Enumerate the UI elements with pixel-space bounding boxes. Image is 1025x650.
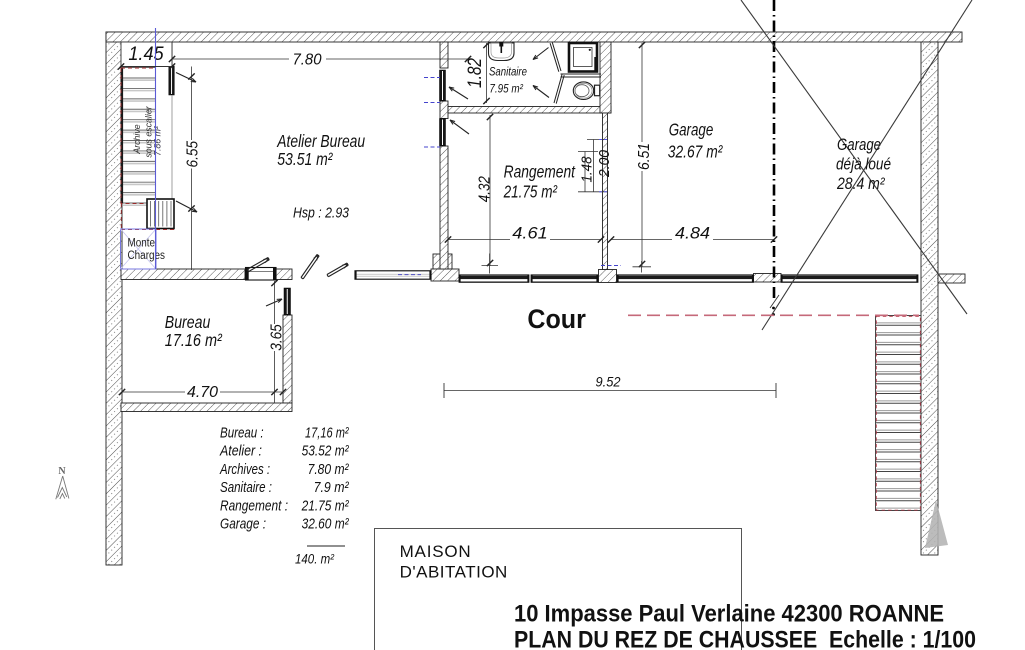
svg-text:PLAN DU REZ DE CHAUSSEE Echel: PLAN DU REZ DE CHAUSSEE Echelle : 1/100	[514, 627, 976, 650]
svg-text:1.45: 1.45	[128, 44, 164, 65]
svg-text:53.52 m²: 53.52 m²	[302, 443, 350, 460]
svg-text:déjà loué: déjà loué	[836, 156, 891, 174]
svg-text:Garage :: Garage :	[220, 516, 266, 533]
svg-text:4.32: 4.32	[476, 176, 493, 202]
svg-text:Archive: Archive	[132, 124, 142, 154]
svg-text:7.95 m²: 7.95 m²	[489, 81, 523, 95]
svg-text:Bureau: Bureau	[165, 312, 211, 332]
svg-text:Rangement :: Rangement :	[220, 497, 288, 514]
svg-text:7.9 m²: 7.9 m²	[314, 479, 350, 496]
svg-text:Bureau :: Bureau :	[220, 425, 264, 442]
svg-text:7.80: 7.80	[293, 51, 322, 68]
svg-text:Garage: Garage	[669, 120, 714, 140]
svg-text:Hsp : 2.93: Hsp : 2.93	[293, 206, 349, 222]
svg-text:1.48: 1.48	[579, 156, 596, 183]
svg-text:4.61: 4.61	[512, 224, 548, 243]
svg-text:Atelier Bureau: Atelier Bureau	[277, 131, 366, 151]
svg-text:2.00: 2.00	[596, 149, 613, 178]
svg-text:D'ABITATION: D'ABITATION	[400, 563, 508, 582]
svg-text:Charges: Charges	[128, 250, 166, 262]
svg-text:MAISON: MAISON	[400, 542, 472, 561]
svg-text:Sanitaire: Sanitaire	[489, 65, 527, 79]
svg-text:Atelier :: Atelier :	[219, 443, 262, 460]
svg-text:140. m²: 140. m²	[295, 551, 335, 567]
svg-text:53.51 m²: 53.51 m²	[277, 149, 333, 169]
svg-text:7.80 m²: 7.80 m²	[308, 461, 350, 478]
svg-text:Cour: Cour	[527, 304, 586, 334]
svg-text:21.75 m²: 21.75 m²	[503, 182, 558, 202]
svg-text:9.52: 9.52	[596, 374, 621, 390]
svg-text:28.4 m²: 28.4 m²	[836, 175, 885, 193]
svg-text:4.84: 4.84	[675, 224, 710, 243]
svg-text:6.51: 6.51	[636, 143, 653, 170]
svg-text:32.60 m²: 32.60 m²	[302, 516, 350, 533]
svg-text:Rangement: Rangement	[504, 162, 576, 182]
svg-text:17.16 m²: 17.16 m²	[165, 330, 223, 350]
svg-text:Monte: Monte	[128, 238, 156, 250]
svg-text:Garage: Garage	[837, 136, 881, 154]
svg-text:1.82: 1.82	[465, 58, 486, 88]
svg-text:32.67 m²: 32.67 m²	[668, 142, 723, 162]
svg-text:N: N	[58, 466, 66, 477]
svg-text:17,16 m²: 17,16 m²	[305, 425, 349, 442]
svg-text:Archives :: Archives :	[219, 461, 270, 478]
svg-text:6.55: 6.55	[185, 141, 202, 168]
svg-text:10 Impasse Paul Verlaine 42300: 10 Impasse Paul Verlaine 42300 ROANNE	[514, 601, 944, 628]
svg-text:Sanitaire :: Sanitaire :	[220, 479, 272, 496]
svg-text:7.86 m²: 7.86 m²	[153, 125, 163, 156]
svg-text:21.75 m²: 21.75 m²	[301, 497, 350, 514]
svg-text:4.70: 4.70	[187, 384, 218, 401]
svg-text:3.65: 3.65	[268, 324, 285, 351]
